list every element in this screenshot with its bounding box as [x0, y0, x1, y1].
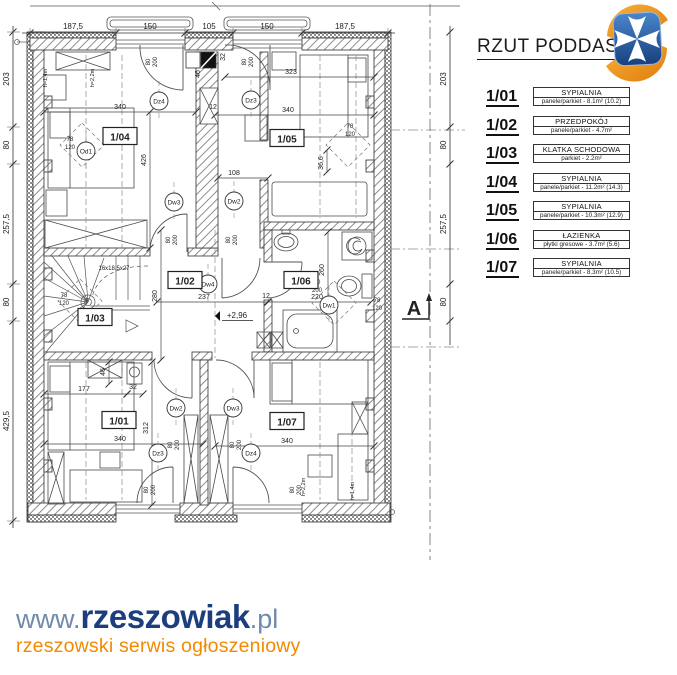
desk-1-01 — [70, 470, 142, 502]
legend-room-number: 1/07 — [486, 259, 519, 278]
rzeszow-crest-logo — [597, 0, 677, 86]
dim-text: 80 — [2, 297, 11, 306]
legend-room-name: SYPIALNIA — [534, 202, 629, 212]
dim-annotation: 120 — [372, 306, 383, 312]
legend-room-desc: panele/parkiet - 8.3m² (10.5) — [534, 269, 629, 277]
dim-annotation: 32 — [220, 53, 227, 61]
dim-annotation: 80 — [226, 236, 232, 243]
dim-annotation: 200 — [173, 234, 179, 245]
dim-annotation: +2,96 — [227, 311, 248, 320]
dim-annotation: 78 — [61, 293, 68, 299]
room-label: 1/05 — [277, 135, 297, 146]
legend-row: 1/03KLATKA SCHODOWAparkiet - 2.2m² — [486, 144, 646, 163]
dim-annotation: 426 — [141, 154, 148, 166]
door-code: Dz4 — [245, 450, 257, 457]
legend-room-box: PRZEDPOKÓJpanele/parkiet - 4.7m² — [533, 116, 630, 135]
builtin-wardrobe-right — [210, 415, 228, 503]
legend-room-desc: parkiet - 2.2m² — [534, 155, 629, 163]
dim-annotation: 16x18,5x27 — [98, 266, 130, 272]
dim-annotation: h=1,4m — [350, 481, 356, 500]
dim-annotation: 200 — [175, 439, 181, 450]
legend-room-desc: panele/parkiet - 10.3m² (12.9) — [534, 212, 629, 220]
dim-text: 257,5 — [439, 213, 448, 234]
legend-room-name: SYPIALNIA — [534, 259, 629, 269]
room-legend: 1/01SYPIALNIApanele/parkiet - 8.1m² (10.… — [486, 87, 646, 287]
room-label: 1/07 — [277, 418, 297, 429]
dim-annotation: 323 — [285, 69, 297, 76]
wardrobe-1-01 — [48, 452, 64, 504]
dim-annotation: 80 — [144, 486, 150, 493]
legend-room-number: 1/05 — [486, 202, 519, 221]
dim-text: 257,5 — [2, 213, 11, 234]
dim-annotation: 200 — [237, 439, 243, 450]
legend-room-box: SYPIALNIApanele/parkiet - 11.2m² (14.3) — [533, 173, 630, 192]
legend-room-desc: panele/parkiet - 8.1m² (10.2) — [534, 98, 629, 106]
sink-icon — [274, 230, 298, 251]
dim-annotation: 200 — [249, 56, 255, 67]
legend-row: 1/02PRZEDPOKÓJpanele/parkiet - 4.7m² — [486, 116, 646, 135]
sofa-1-05 — [272, 182, 367, 216]
dim-annotation: 80 — [166, 236, 172, 243]
page: 187,5150105150187,520380257,580429,52038… — [0, 0, 677, 675]
dim-annotation: h=1,4m — [43, 68, 49, 87]
dim-annotation: h=2,2m — [90, 68, 96, 87]
wardrobe-low-1-04 — [45, 220, 147, 248]
table-1-04 — [46, 190, 67, 216]
floor-plan: 187,5150105150187,520380257,580429,52038… — [0, 0, 470, 605]
dim-annotation: 200 — [151, 484, 157, 495]
room-label: 1/06 — [291, 277, 311, 288]
section-arrow-head — [426, 293, 432, 301]
door-arcs — [137, 45, 302, 503]
legend-room-number: 1/01 — [486, 88, 519, 107]
dim-annotation: 80 — [168, 441, 174, 448]
legend-room-desc: panele/parkiet - 4.7m² — [534, 127, 629, 135]
dim-text: 105 — [202, 22, 216, 31]
dim-annotation: 12 — [209, 104, 217, 111]
legend-room-name: KLATKA SCHODOWA — [534, 145, 629, 155]
door-code: Od1 — [80, 148, 93, 155]
dim-annotation: 312 — [143, 422, 150, 434]
room-label: 1/04 — [110, 133, 130, 144]
legend-room-desc: płytki gresowe - 3.7m² (5.6) — [534, 241, 629, 249]
legend-room-box: ŁAZIENKApłytki gresowe - 3.7m² (5.6) — [533, 230, 630, 249]
brand-name: rzeszowiak — [81, 598, 250, 635]
door-code: Dw3 — [226, 405, 239, 412]
dim-annotation: 120 — [65, 145, 76, 151]
legend-room-number: 1/03 — [486, 145, 519, 164]
brand-logo: www.rzeszowiak.pl — [16, 600, 301, 633]
dim-annotation: 108 — [228, 170, 240, 177]
door-code: Dz4 — [153, 98, 165, 105]
legend-row: 1/07SYPIALNIApanele/parkiet - 8.3m² (10.… — [486, 258, 646, 277]
door-code: Dz3 — [152, 450, 164, 457]
dim-annotation: 177 — [78, 386, 90, 393]
shelf-1-05 — [272, 52, 296, 70]
dim-annotation: 340 — [114, 104, 126, 111]
dim-annotation: 80 — [242, 58, 248, 65]
dim-annotation: 260 — [319, 264, 326, 276]
dim-text: 150 — [260, 22, 274, 31]
door-code: Dw2 — [227, 198, 240, 205]
room-label: 1/03 — [85, 314, 105, 325]
legend-room-number: 1/04 — [486, 174, 519, 193]
dim-text: 80 — [439, 297, 448, 306]
door-code: Dw4 — [201, 281, 214, 288]
dim-annotation: 80 — [230, 441, 236, 448]
dim-text: 150 — [143, 22, 157, 31]
wardrobe-1-04 — [56, 52, 110, 70]
legend-room-name: ŁAZIENKA — [534, 231, 629, 241]
door-code: Dw2 — [169, 405, 182, 412]
dim-text: 203 — [439, 72, 448, 86]
room-label: 1/02 — [175, 277, 195, 288]
dim-annotation: h=2,2m — [301, 477, 307, 496]
dim-annotation: 120 — [345, 132, 356, 138]
bed-1-05 — [300, 55, 368, 137]
dim-text: 80 — [439, 140, 448, 149]
dim-annotation: 80 — [146, 58, 152, 65]
dim-annotation: 78 — [374, 298, 381, 304]
dim-annotation: 280 — [152, 290, 159, 302]
dim-text: 187,5 — [63, 22, 84, 31]
room-label: 1/01 — [109, 417, 129, 428]
dim-annotation: 120 — [59, 301, 70, 307]
door-code: Dw3 — [167, 199, 180, 206]
dim-text: 429,5 — [2, 410, 11, 431]
chair-1-01 — [100, 452, 120, 468]
floor-plan-drawing: 187,5150105150187,520380257,580429,52038… — [0, 0, 470, 600]
bed-1-07 — [270, 360, 368, 404]
legend-room-number: 1/06 — [486, 231, 519, 250]
toilet-icon — [337, 274, 372, 298]
legend-room-box: SYPIALNIApanele/parkiet - 10.3m² (12.9) — [533, 201, 630, 220]
legend-row: 1/05SYPIALNIApanele/parkiet - 10.3m² (12… — [486, 201, 646, 220]
level-marker-icon — [215, 311, 220, 321]
legend-row: 1/04SYPIALNIApanele/parkiet - 11.2m² (14… — [486, 173, 646, 192]
legend-room-name: SYPIALNIA — [534, 88, 629, 98]
dim-annotation: 32 — [129, 384, 137, 391]
dim-annotation: 12 — [262, 293, 270, 300]
reference-lines — [15, 2, 466, 515]
dim-text: 80 — [2, 140, 11, 149]
door-code: Dz3 — [245, 97, 257, 104]
dim-annotation: 200 — [153, 56, 159, 67]
legend-room-box: KLATKA SCHODOWAparkiet - 2.2m² — [533, 144, 630, 163]
legend-row: 1/06ŁAZIENKApłytki gresowe - 3.7m² (5.6) — [486, 230, 646, 249]
dim-annotation: 340 — [114, 436, 126, 443]
dim-text: 187,5 — [335, 22, 356, 31]
dim-annotation: 78 — [67, 137, 74, 143]
legend-room-name: PRZEDPOKÓJ — [534, 117, 629, 127]
brand-www: www. — [16, 604, 81, 634]
basin-1-01 — [127, 363, 142, 384]
bathtub-icon — [283, 310, 337, 352]
dim-annotation: 80 — [290, 486, 296, 493]
builtin-wardrobe-left — [184, 415, 198, 503]
dim-annotation: 200 — [233, 234, 239, 245]
dim-annotation: 340 — [282, 107, 294, 114]
dim-annotation: 340 — [281, 438, 293, 445]
brand-tld: .pl — [250, 604, 279, 634]
brand-tagline: rzeszowski serwis ogłoszeniowy — [16, 637, 301, 657]
dim-text: 203 — [2, 72, 11, 86]
legend-row: 1/01SYPIALNIApanele/parkiet - 8.1m² (10.… — [486, 87, 646, 106]
door-code: Dw1 — [322, 302, 335, 309]
cabinet-icon — [257, 332, 283, 348]
wardrobe-1-07 — [352, 402, 368, 434]
dim-annotation: 46 — [195, 70, 202, 78]
legend-room-box: SYPIALNIApanele/parkiet - 8.1m² (10.2) — [533, 87, 630, 106]
legend-room-desc: panele/parkiet - 11.2m² (14.3) — [534, 184, 629, 192]
legend-room-name: SYPIALNIA — [534, 174, 629, 184]
legend-room-number: 1/02 — [486, 117, 519, 136]
legend-room-box: SYPIALNIApanele/parkiet - 8.3m² (10.5) — [533, 258, 630, 277]
section-marker: A — [407, 298, 421, 320]
dim-annotation: 36,6 — [318, 156, 325, 170]
dim-annotation: 46 — [100, 368, 107, 376]
watermark: www.rzeszowiak.pl rzeszowski serwis ogło… — [16, 600, 301, 657]
